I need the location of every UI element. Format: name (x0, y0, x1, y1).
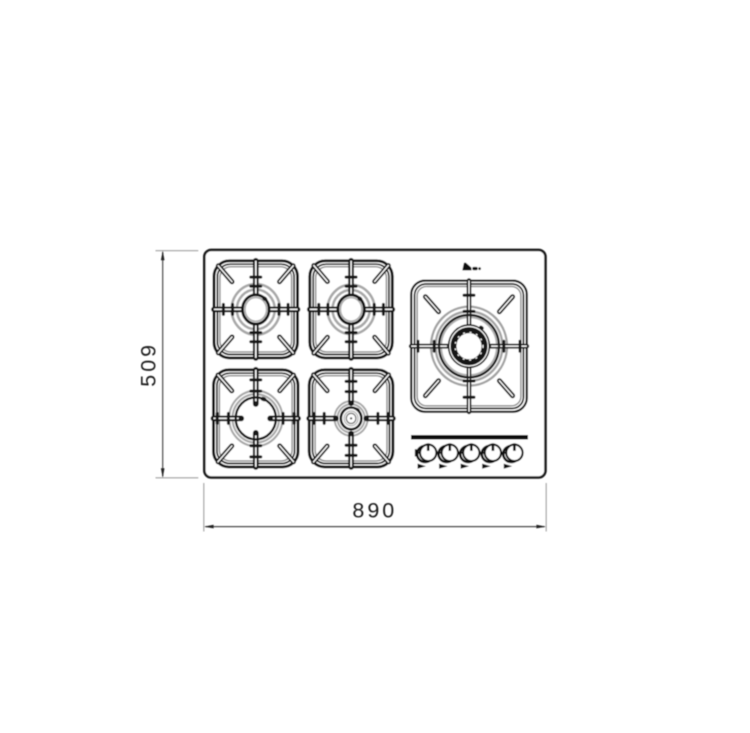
svg-text:890: 890 (352, 499, 397, 523)
svg-text:509: 509 (136, 342, 160, 387)
